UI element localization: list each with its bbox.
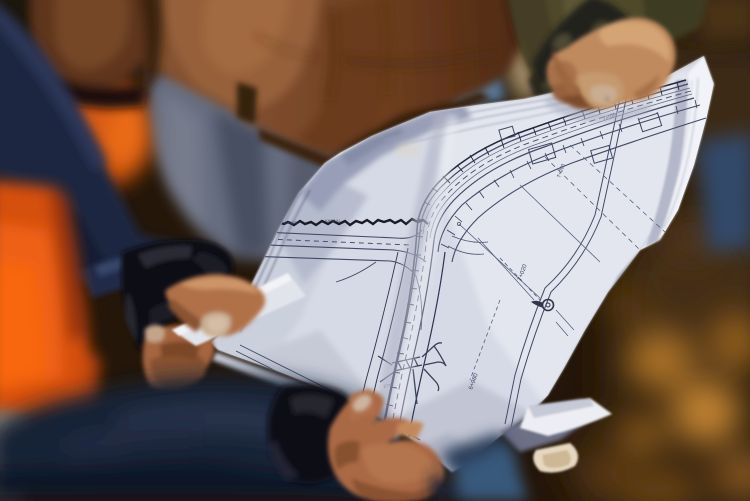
svg-text:ΚΑΝΑΛΙ: ΚΑΝΑΛΙ xyxy=(325,218,340,223)
